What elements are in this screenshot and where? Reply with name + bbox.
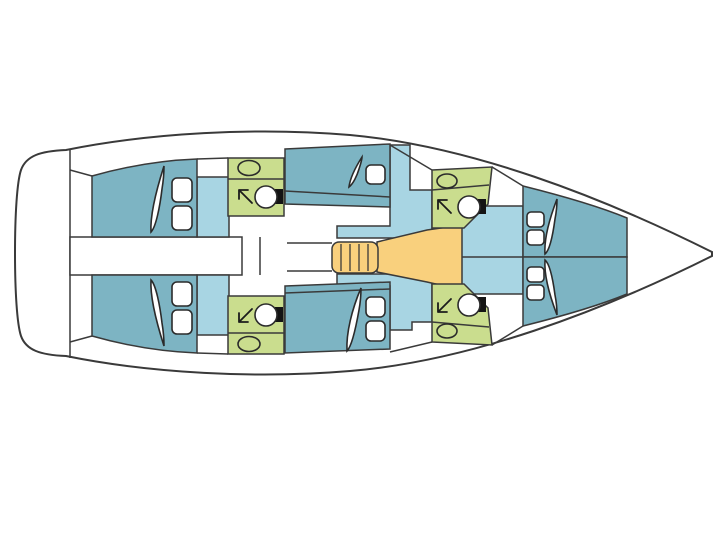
head-port-aft — [228, 158, 284, 216]
deck-line — [197, 158, 228, 159]
pillow — [527, 212, 544, 227]
toilet-icon — [255, 186, 277, 208]
toilet-icon — [458, 196, 480, 218]
pillow — [366, 297, 385, 317]
pillow — [366, 165, 385, 184]
pillow — [366, 321, 385, 341]
wardrobe-aft-starboard — [197, 275, 229, 335]
pillow — [172, 206, 192, 230]
yacht-floor-plan-canvas — [0, 0, 720, 540]
companionway-stairs — [332, 242, 378, 273]
yacht-floor-plan — [0, 0, 720, 540]
pillow — [172, 310, 192, 334]
toilet-icon — [458, 294, 480, 316]
aft-corridor — [70, 237, 242, 275]
head-starboard-aft — [228, 296, 284, 354]
deck-line — [197, 353, 228, 354]
pillow — [172, 178, 192, 202]
pillow — [172, 282, 192, 306]
pillow — [527, 285, 544, 300]
wardrobe-aft-port — [197, 177, 229, 237]
pillow — [527, 230, 544, 245]
toilet-icon — [255, 304, 277, 326]
pillow — [527, 267, 544, 282]
